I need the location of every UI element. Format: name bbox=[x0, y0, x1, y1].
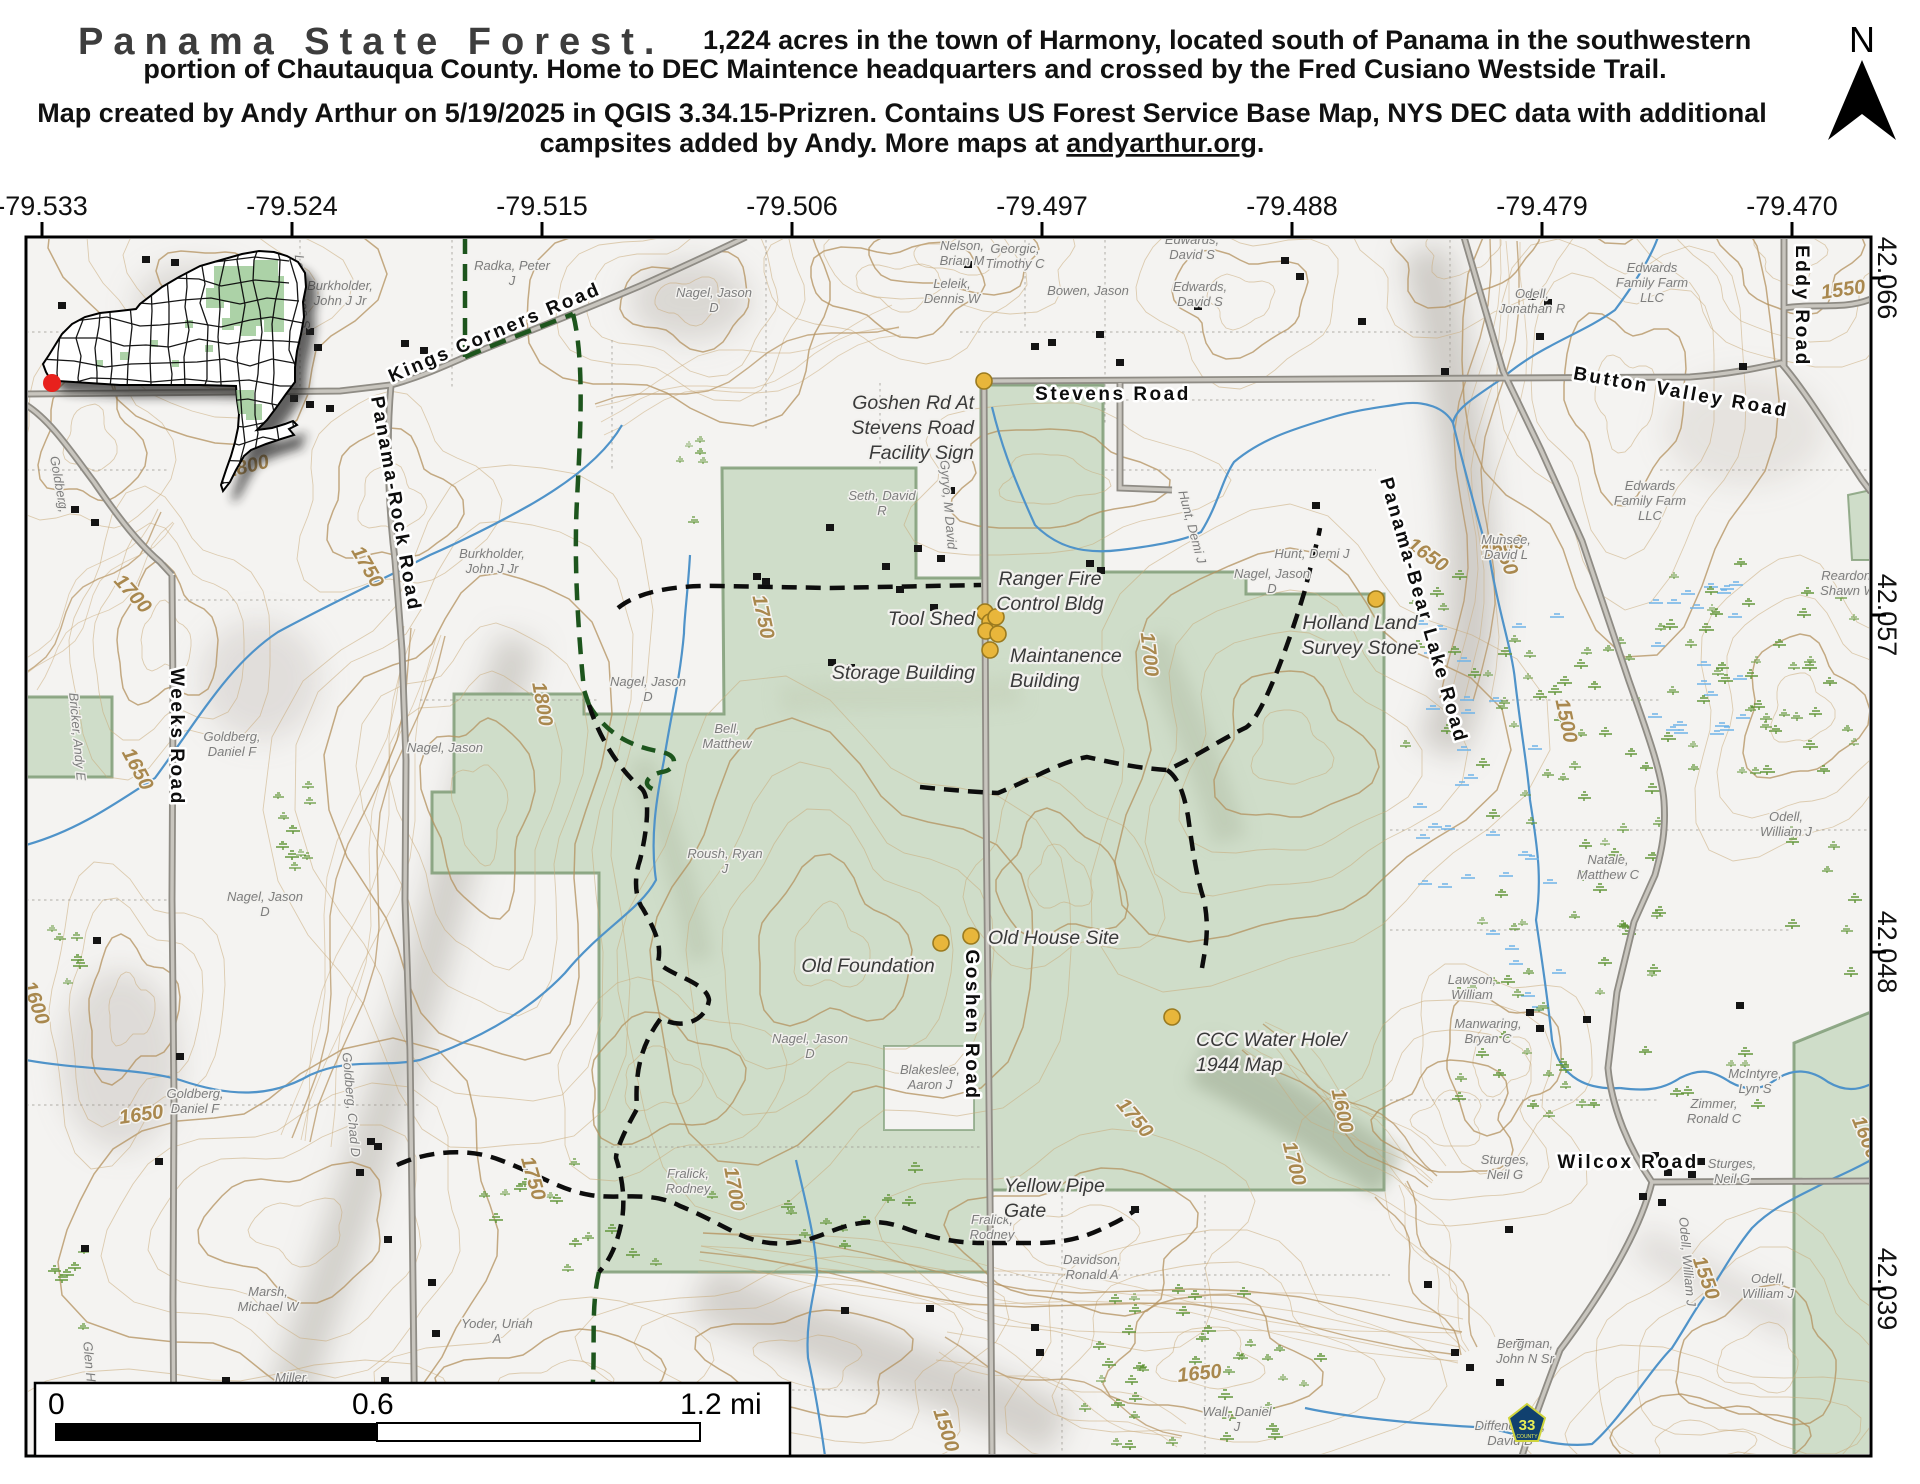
svg-text:Neil G: Neil G bbox=[1714, 1171, 1750, 1186]
svg-text:R: R bbox=[877, 503, 886, 518]
svg-text:John N Sr: John N Sr bbox=[1495, 1351, 1554, 1366]
svg-text:Georgic,: Georgic, bbox=[990, 241, 1039, 256]
svg-text:Building: Building bbox=[1010, 670, 1080, 692]
svg-text:Gate: Gate bbox=[1004, 1200, 1046, 1222]
svg-text:Nagel, Jason: Nagel, Jason bbox=[772, 1031, 848, 1046]
svg-text:Bell,: Bell, bbox=[714, 721, 739, 736]
svg-text:Manwaring,: Manwaring, bbox=[1454, 1016, 1521, 1031]
svg-text:Nagel, Jason: Nagel, Jason bbox=[610, 674, 686, 689]
svg-text:Matthew: Matthew bbox=[702, 736, 753, 751]
svg-text:-79.533: -79.533 bbox=[0, 191, 88, 221]
svg-text:N: N bbox=[1849, 19, 1875, 60]
svg-text:Ronald C: Ronald C bbox=[1687, 1111, 1742, 1126]
svg-text:Rodney: Rodney bbox=[666, 1181, 712, 1196]
svg-text:Odell,: Odell, bbox=[1515, 286, 1549, 301]
svg-text:Dennis W: Dennis W bbox=[924, 291, 982, 306]
svg-text:-79.479: -79.479 bbox=[1496, 191, 1588, 221]
svg-text:D: D bbox=[709, 300, 718, 315]
svg-text:J: J bbox=[1233, 1419, 1241, 1434]
svg-text:Nagel, Jason: Nagel, Jason bbox=[407, 740, 483, 755]
svg-text:Survey Stone: Survey Stone bbox=[1301, 637, 1418, 659]
svg-text:LLC: LLC bbox=[1638, 508, 1662, 523]
svg-text:J: J bbox=[508, 273, 516, 288]
svg-text:Nagel, Jason: Nagel, Jason bbox=[227, 889, 303, 904]
svg-text:David S: David S bbox=[1177, 294, 1223, 309]
svg-text:33: 33 bbox=[1519, 1417, 1536, 1434]
svg-text:Reardon,: Reardon, bbox=[1821, 568, 1874, 583]
svg-text:Natale,: Natale, bbox=[1587, 852, 1628, 867]
svg-text:McIntyre,: McIntyre, bbox=[1728, 1066, 1781, 1081]
svg-text:Wilcox Road: Wilcox Road bbox=[1557, 1152, 1698, 1173]
svg-text:Family Farm: Family Farm bbox=[1616, 275, 1688, 290]
svg-text:1944 Map: 1944 Map bbox=[1196, 1054, 1283, 1076]
svg-text:-79.470: -79.470 bbox=[1746, 191, 1838, 221]
svg-text:CCC Water Hole/: CCC Water Hole/ bbox=[1196, 1029, 1349, 1051]
svg-text:-79.497: -79.497 bbox=[996, 191, 1088, 221]
svg-text:Timothy C: Timothy C bbox=[985, 256, 1045, 271]
svg-text:David L: David L bbox=[1484, 547, 1528, 562]
svg-text:1,224 acres in the town of Har: 1,224 acres in the town of Harmony, loca… bbox=[703, 25, 1751, 55]
svg-text:Nelson,: Nelson, bbox=[940, 238, 984, 253]
svg-text:Fralick,: Fralick, bbox=[667, 1166, 709, 1181]
svg-text:Goldberg,: Goldberg, bbox=[166, 1086, 223, 1101]
svg-text:Control Bldg: Control Bldg bbox=[996, 593, 1103, 615]
svg-text:John J Jr: John J Jr bbox=[313, 293, 367, 308]
svg-text:Hunt, Demi J: Hunt, Demi J bbox=[1274, 546, 1350, 561]
svg-text:William J: William J bbox=[1742, 1286, 1794, 1301]
svg-text:Bryan C: Bryan C bbox=[1465, 1031, 1513, 1046]
svg-text:Seth, David: Seth, David bbox=[848, 488, 916, 503]
svg-text:Roush, Ryan: Roush, Ryan bbox=[687, 846, 762, 861]
svg-text:Ronald A: Ronald A bbox=[1066, 1267, 1119, 1282]
svg-text:Zimmer,: Zimmer, bbox=[1690, 1096, 1738, 1111]
svg-text:portion of Chautauqua County.: portion of Chautauqua County. Home to DE… bbox=[143, 54, 1666, 84]
svg-text:William J: William J bbox=[1760, 824, 1812, 839]
svg-text:Wall, Daniel: Wall, Daniel bbox=[1202, 1404, 1272, 1419]
svg-text:Shawn W: Shawn W bbox=[1820, 583, 1877, 598]
svg-text:Ranger Fire: Ranger Fire bbox=[999, 568, 1102, 590]
svg-text:Blakeslee,: Blakeslee, bbox=[900, 1062, 960, 1077]
svg-text:Edwards,: Edwards, bbox=[1173, 279, 1227, 294]
svg-text:Tool Shed: Tool Shed bbox=[888, 608, 976, 630]
svg-text:Goshen Road: Goshen Road bbox=[961, 949, 982, 1100]
svg-text:Sturges,: Sturges, bbox=[1481, 1152, 1529, 1167]
svg-text:1650: 1650 bbox=[1176, 1360, 1223, 1387]
svg-text:Goshen Rd At: Goshen Rd At bbox=[852, 392, 975, 414]
svg-text:LLC: LLC bbox=[1640, 290, 1664, 305]
svg-text:David S: David S bbox=[1169, 247, 1215, 262]
svg-text:Aaron J: Aaron J bbox=[907, 1077, 953, 1092]
svg-text:Leleik,: Leleik, bbox=[933, 276, 971, 291]
svg-text:Stevens Road: Stevens Road bbox=[852, 417, 976, 439]
svg-text:Daniel F: Daniel F bbox=[171, 1101, 220, 1116]
svg-text:Burkholder,: Burkholder, bbox=[307, 278, 373, 293]
svg-text:J: J bbox=[721, 861, 729, 876]
svg-text:Bowen, Jason: Bowen, Jason bbox=[1047, 283, 1129, 298]
svg-text:Yoder, Uriah: Yoder, Uriah bbox=[461, 1316, 533, 1331]
svg-text:Old Foundation: Old Foundation bbox=[801, 955, 934, 977]
svg-text:Daniel F: Daniel F bbox=[208, 744, 257, 759]
svg-text:Edwards: Edwards bbox=[1627, 260, 1678, 275]
svg-text:D: D bbox=[805, 1046, 814, 1061]
svg-text:Munsee,: Munsee, bbox=[1481, 532, 1531, 547]
svg-text:Davidson,: Davidson, bbox=[1063, 1252, 1121, 1267]
svg-text:Radka, Peter: Radka, Peter bbox=[474, 258, 551, 273]
svg-text:Lyn S: Lyn S bbox=[1738, 1081, 1771, 1096]
svg-text:Holland Land: Holland Land bbox=[1303, 612, 1419, 634]
svg-text:1700: 1700 bbox=[1136, 631, 1163, 678]
svg-text:Matthew C: Matthew C bbox=[1577, 867, 1640, 882]
svg-text:Lawson,: Lawson, bbox=[1448, 972, 1496, 987]
svg-text:A: A bbox=[492, 1331, 502, 1346]
svg-text:D: D bbox=[643, 689, 652, 704]
svg-text:-79.524: -79.524 bbox=[246, 191, 338, 221]
svg-text:Neil G: Neil G bbox=[1487, 1167, 1523, 1182]
svg-text:-79.488: -79.488 bbox=[1246, 191, 1338, 221]
svg-text:Yellow Pipe: Yellow Pipe bbox=[1004, 1175, 1105, 1197]
svg-text:Odell,: Odell, bbox=[1769, 809, 1803, 824]
svg-text:D: D bbox=[260, 904, 269, 919]
svg-text:D: D bbox=[1267, 581, 1276, 596]
svg-text:COUNTY: COUNTY bbox=[1516, 1434, 1538, 1440]
svg-text:Rodney: Rodney bbox=[970, 1227, 1016, 1242]
svg-text:Nagel, Jason: Nagel, Jason bbox=[1234, 566, 1310, 581]
svg-text:-79.506: -79.506 bbox=[746, 191, 838, 221]
svg-text:Storage Building: Storage Building bbox=[832, 662, 975, 684]
svg-text:Weeks Road: Weeks Road bbox=[166, 668, 187, 806]
svg-text:Michael W: Michael W bbox=[238, 1299, 300, 1314]
svg-text:John J Jr: John J Jr bbox=[465, 561, 519, 576]
svg-text:William: William bbox=[1451, 987, 1493, 1002]
svg-text:Brian M: Brian M bbox=[940, 253, 985, 268]
svg-text:Burkholder,: Burkholder, bbox=[459, 546, 525, 561]
svg-text:campsites added by Andy. More: campsites added by Andy. More maps at an… bbox=[540, 128, 1265, 158]
svg-text:Jonathan R: Jonathan R bbox=[1498, 301, 1566, 316]
svg-text:Map created by Andy Arthur on: Map created by Andy Arthur on 5/19/2025 … bbox=[37, 98, 1766, 128]
svg-text:1.2 mi: 1.2 mi bbox=[680, 1388, 762, 1421]
svg-text:Eddy Road: Eddy Road bbox=[1791, 245, 1812, 367]
svg-text:Maintanence: Maintanence bbox=[1010, 645, 1122, 667]
svg-text:Marsh,: Marsh, bbox=[248, 1284, 288, 1299]
svg-text:Nagel, Jason: Nagel, Jason bbox=[676, 285, 752, 300]
svg-text:-79.515: -79.515 bbox=[496, 191, 588, 221]
svg-text:Family Farm: Family Farm bbox=[1614, 493, 1686, 508]
svg-text:Sturges,: Sturges, bbox=[1708, 1156, 1756, 1171]
svg-text:Facility Sign: Facility Sign bbox=[869, 442, 974, 464]
svg-text:0.6: 0.6 bbox=[352, 1388, 394, 1421]
svg-text:Stevens Road: Stevens Road bbox=[1035, 384, 1191, 405]
svg-text:Bergman,: Bergman, bbox=[1497, 1336, 1553, 1351]
svg-text:Odell,: Odell, bbox=[1751, 1271, 1785, 1286]
svg-text:Edwards: Edwards bbox=[1625, 478, 1676, 493]
svg-text:Old House Site: Old House Site bbox=[988, 927, 1119, 949]
svg-text:Goldberg,: Goldberg, bbox=[203, 729, 260, 744]
svg-text:0: 0 bbox=[48, 1388, 65, 1421]
